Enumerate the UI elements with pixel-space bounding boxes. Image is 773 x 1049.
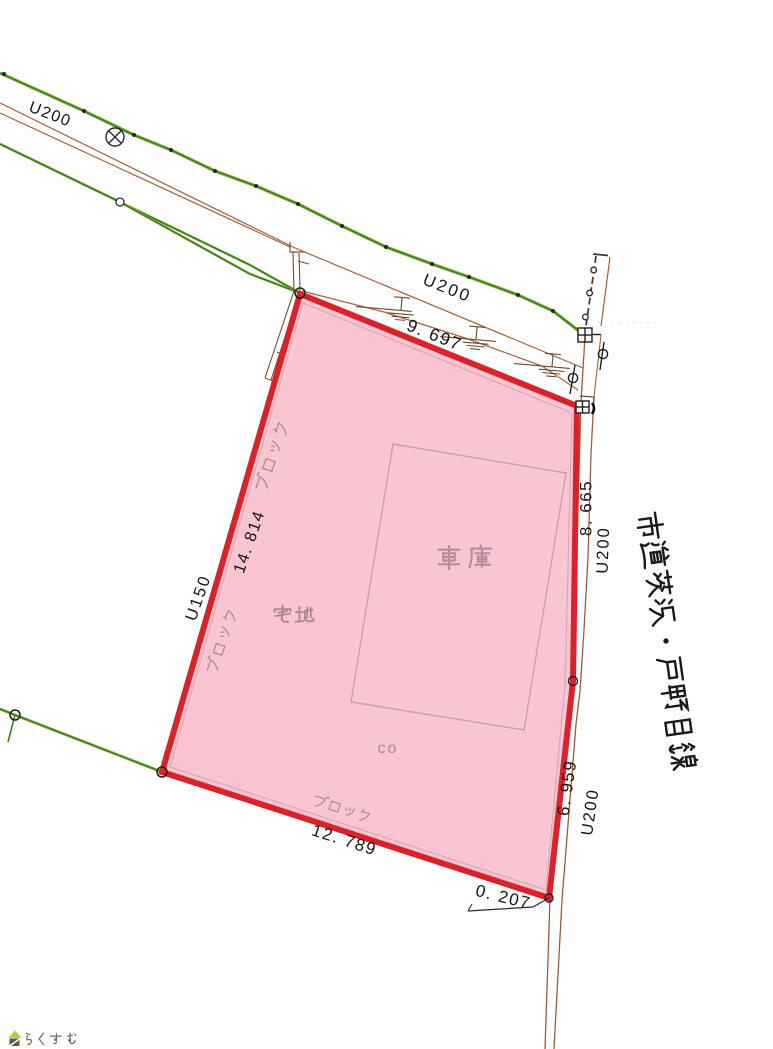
svg-text:co: co [378, 740, 399, 757]
svg-text:U200: U200 [594, 526, 614, 574]
svg-text:U200: U200 [578, 787, 602, 836]
svg-text:8. 665: 8. 665 [576, 480, 595, 536]
